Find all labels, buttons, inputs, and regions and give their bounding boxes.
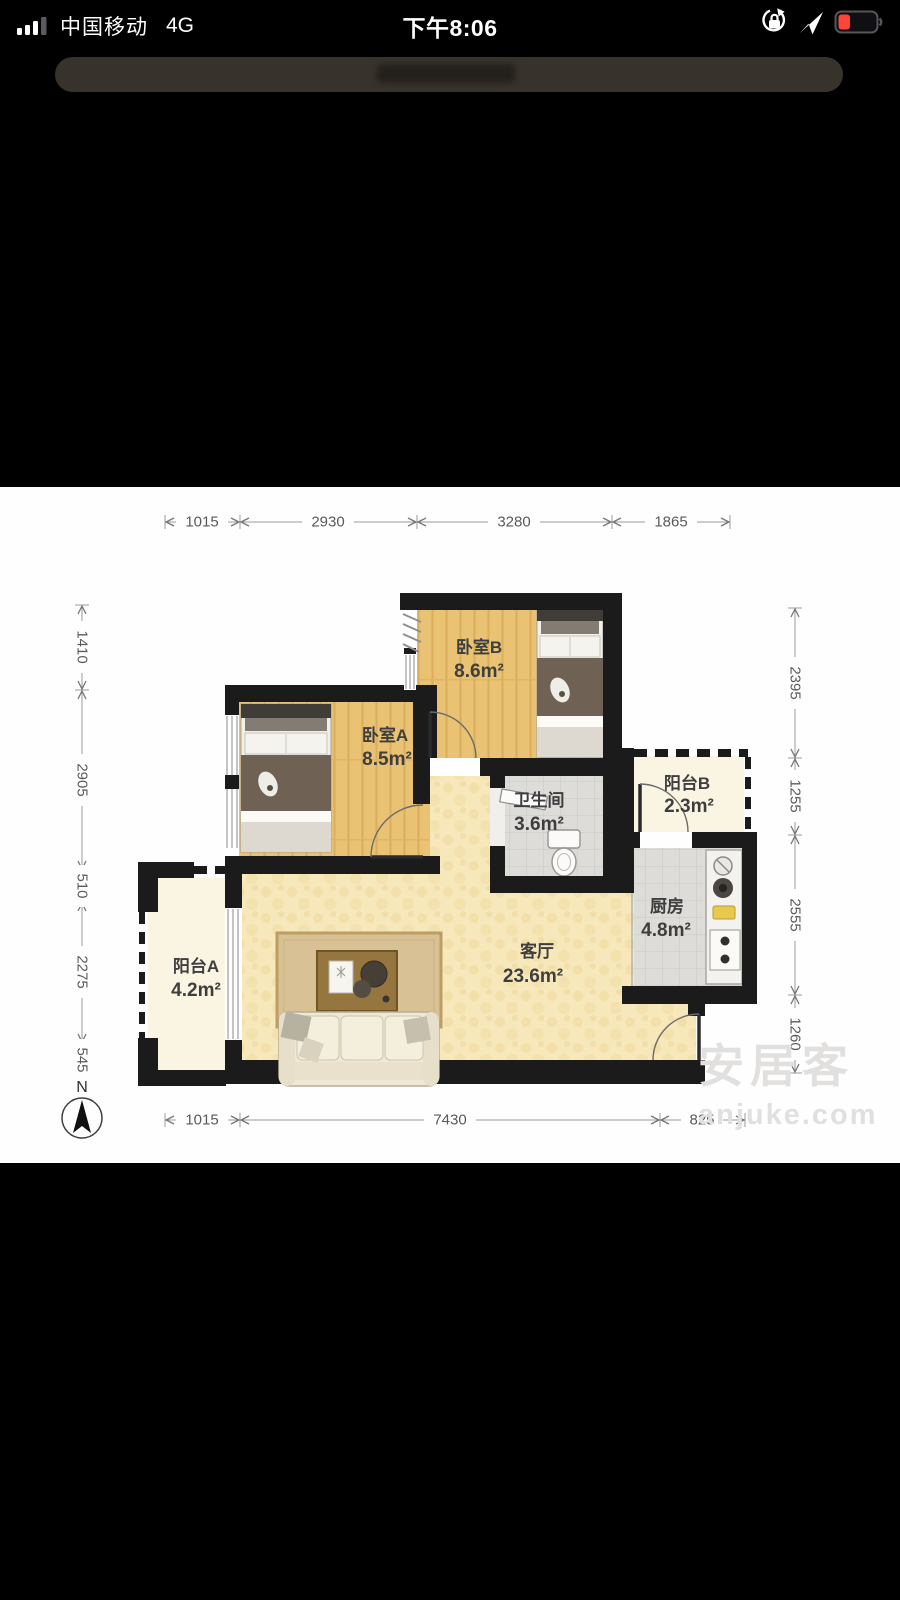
svg-text:1865: 1865 <box>654 514 687 531</box>
svg-text:1255: 1255 <box>787 779 804 812</box>
room-label-living: 客厅 <box>519 941 554 961</box>
svg-text:7430: 7430 <box>433 1112 466 1129</box>
room-area-balcony-a: 4.2m² <box>171 980 221 1001</box>
watermark-domain: anjuke.com <box>698 1099 878 1131</box>
svg-text:2905: 2905 <box>74 763 91 796</box>
svg-text:1015: 1015 <box>185 1112 218 1129</box>
svg-text:3280: 3280 <box>497 514 530 531</box>
room-area-bedroom-a: 8.5m² <box>362 749 412 770</box>
svg-text:2930: 2930 <box>311 514 344 531</box>
dimension-top: 1015 2930 3280 1865 <box>165 513 730 531</box>
north-label: N <box>76 1079 88 1096</box>
balcony-b-floor <box>632 756 744 832</box>
room-area-bedroom-b: 8.6m² <box>454 661 504 682</box>
room-area-kitchen: 4.8m² <box>641 920 691 941</box>
dimension-bottom: 1015 7430 825 <box>165 1111 745 1129</box>
nav-pill-title-smudge <box>377 64 515 83</box>
coffee-table <box>317 951 397 1011</box>
svg-text:2275: 2275 <box>74 955 91 988</box>
anjuke-watermark: 安居客 anjuke.com <box>698 1040 878 1131</box>
nav-pill[interactable] <box>55 57 843 92</box>
room-label-balcony-a: 阳台A <box>173 956 219 976</box>
north-compass: N <box>62 1079 102 1138</box>
room-area-bathroom: 3.6m² <box>514 814 564 835</box>
room-label-bedroom-b: 卧室B <box>456 637 502 657</box>
room-area-living: 23.6m² <box>503 966 563 987</box>
room-label-bedroom-a: 卧室A <box>362 725 408 745</box>
svg-text:2395: 2395 <box>787 666 804 699</box>
bedroom-a-doorway-floor <box>413 804 430 856</box>
floorplan-viewer[interactable]: 卧室B 8.6m² 卧室A 8.5m² 卫生间 3.6m² 阳台B 2.3m² … <box>0 487 900 1163</box>
bed-b <box>537 606 603 757</box>
svg-text:2555: 2555 <box>787 898 804 931</box>
floorplan-image: 卧室B 8.6m² 卧室A 8.5m² 卫生间 3.6m² 阳台B 2.3m² … <box>0 487 900 1163</box>
north-needle <box>73 1100 91 1133</box>
dimension-right: 2395 1255 2555 1260 <box>786 608 804 1073</box>
dimension-left: 1410 2905 510 2275 545 <box>73 605 91 1081</box>
room-label-bathroom: 卫生间 <box>514 790 565 810</box>
watermark-brand: 安居客 <box>698 1040 854 1092</box>
svg-text:510: 510 <box>74 873 91 898</box>
room-label-kitchen: 厨房 <box>650 896 684 916</box>
svg-text:545: 545 <box>74 1047 91 1072</box>
room-area-balcony-b: 2.3m² <box>664 796 714 817</box>
statusbar-right <box>759 7 884 37</box>
bed-a <box>241 704 331 852</box>
kitchen-counter <box>706 850 742 984</box>
svg-text:1410: 1410 <box>74 630 91 663</box>
sofa <box>279 1012 439 1086</box>
location-icon <box>798 9 825 36</box>
orientation-lock-icon <box>759 7 789 37</box>
svg-text:1015: 1015 <box>185 514 218 531</box>
room-label-balcony-b: 阳台B <box>664 773 710 793</box>
phone-screen: { "status_bar": { "carrier": "中国移动", "ne… <box>0 0 900 1600</box>
battery-icon <box>834 9 884 35</box>
